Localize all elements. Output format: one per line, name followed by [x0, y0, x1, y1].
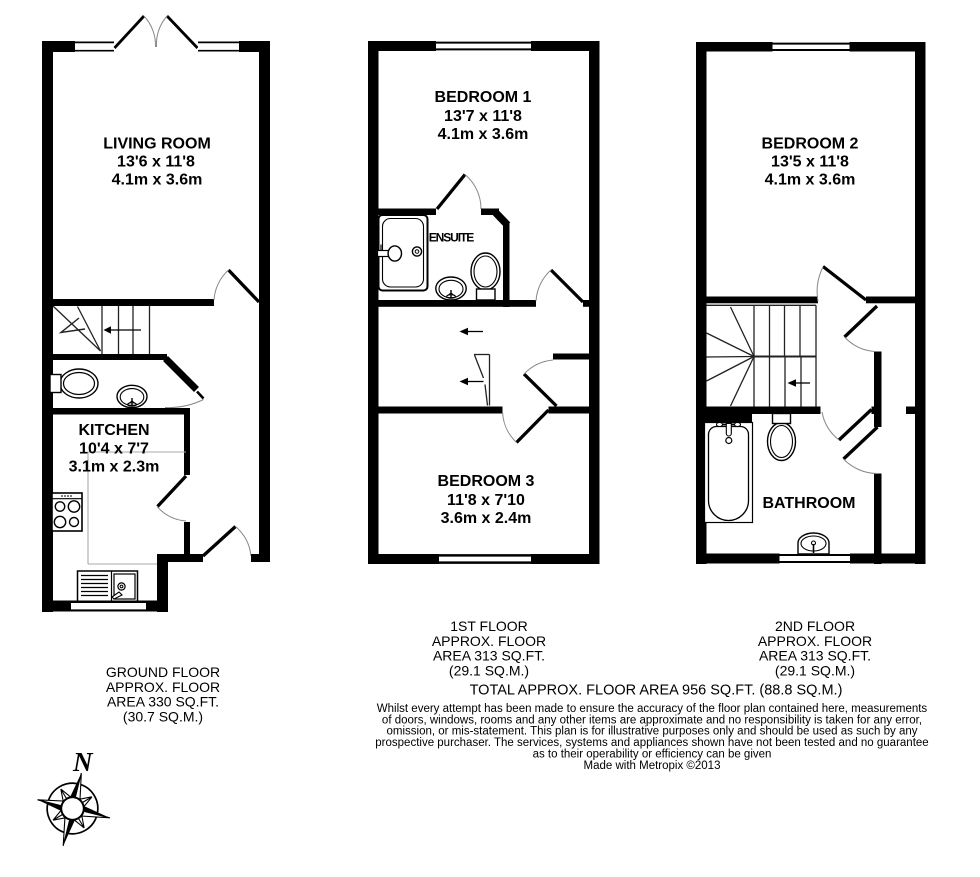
svg-text:13'6 x 11'8: 13'6 x 11'8	[117, 154, 195, 171]
svg-text:4.1m x 3.6m: 4.1m x 3.6m	[438, 126, 529, 143]
svg-text:AREA 313 SQ.FT.: AREA 313 SQ.FT.	[759, 648, 871, 664]
svg-text:N: N	[72, 747, 94, 777]
svg-text:Whilst every attempt has been: Whilst every attempt has been made to en…	[377, 703, 928, 715]
svg-text:4.1m x 3.6m: 4.1m x 3.6m	[765, 171, 856, 188]
svg-text:KITCHEN: KITCHEN	[78, 422, 149, 439]
svg-text:TOTAL APPROX. FLOOR AREA 956 S: TOTAL APPROX. FLOOR AREA 956 SQ.FT. (88.…	[470, 683, 843, 699]
svg-text:as to their operability or eff: as to their operability or efficiency ca…	[533, 749, 772, 761]
svg-text:APPROX. FLOOR: APPROX. FLOOR	[432, 633, 546, 649]
svg-text:BATHROOM: BATHROOM	[762, 495, 855, 512]
svg-text:13'7 x 11'8: 13'7 x 11'8	[444, 108, 522, 125]
svg-text:4.1m x 3.6m: 4.1m x 3.6m	[112, 172, 203, 189]
svg-text:GROUND FLOOR: GROUND FLOOR	[106, 664, 220, 680]
svg-text:AREA 313 SQ.FT.: AREA 313 SQ.FT.	[433, 648, 545, 664]
svg-text:LIVING ROOM: LIVING ROOM	[103, 136, 211, 153]
svg-text:BEDROOM 3: BEDROOM 3	[438, 473, 535, 490]
svg-text:BEDROOM 1: BEDROOM 1	[435, 89, 532, 106]
svg-text:AREA 330 SQ.FT.: AREA 330 SQ.FT.	[107, 694, 219, 710]
svg-text:3.6m x 2.4m: 3.6m x 2.4m	[441, 510, 532, 527]
svg-text:Made with Metropix ©2013: Made with Metropix ©2013	[584, 760, 721, 772]
svg-text:2ND FLOOR: 2ND FLOOR	[775, 618, 855, 634]
svg-text:APPROX. FLOOR: APPROX. FLOOR	[758, 633, 872, 649]
svg-text:BEDROOM 2: BEDROOM 2	[762, 136, 859, 153]
svg-text:prospective purchaser. The ser: prospective purchaser. The services, sys…	[375, 737, 928, 749]
svg-text:13'5 x 11'8: 13'5 x 11'8	[771, 153, 849, 170]
svg-text:omission, or mis-statement. Th: omission, or mis-statement. This plan is…	[387, 726, 918, 738]
svg-text:APPROX. FLOOR: APPROX. FLOOR	[106, 679, 220, 695]
svg-text:(29.1 SQ.M.): (29.1 SQ.M.)	[449, 662, 529, 678]
svg-text:ENSUITE: ENSUITE	[429, 231, 475, 245]
svg-text:1ST FLOOR: 1ST FLOOR	[450, 618, 528, 634]
svg-text:of doors, windows, rooms and a: of doors, windows, rooms and any other i…	[382, 714, 922, 726]
svg-text:10'4 x 7'7: 10'4 x 7'7	[79, 441, 149, 458]
svg-text:11'8 x 7'10: 11'8 x 7'10	[447, 492, 525, 509]
svg-text:3.1m x 2.3m: 3.1m x 2.3m	[69, 459, 160, 476]
svg-text:(30.7 SQ.M.): (30.7 SQ.M.)	[123, 708, 203, 724]
svg-text:(29.1 SQ.M.): (29.1 SQ.M.)	[775, 662, 855, 678]
